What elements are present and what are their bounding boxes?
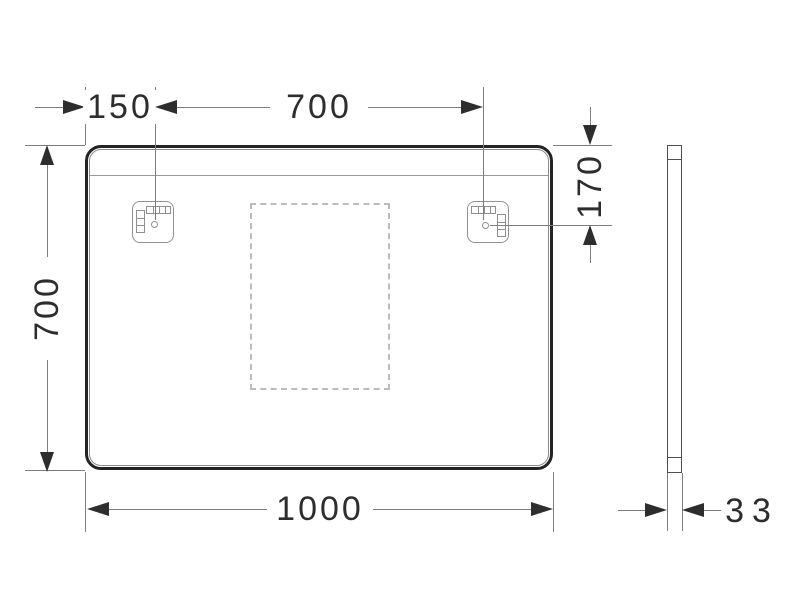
dimension-label-33: 33	[721, 494, 783, 528]
dimension-line-170-upper-lead	[590, 107, 591, 127]
extension-line-width-left	[85, 472, 86, 532]
extension-line-170-top	[553, 145, 612, 146]
extension-line-depth-left	[667, 473, 668, 531]
arrowhead-width-right	[531, 502, 553, 516]
technical-drawing-canvas: 150 700 700 170 1000 33	[0, 0, 800, 600]
dimension-line-height-a	[47, 165, 48, 257]
extension-line-height-top	[25, 145, 85, 146]
bracket-rail-divider	[498, 229, 505, 230]
extension-line-width-right	[553, 472, 554, 532]
extension-line-height-bottom	[25, 470, 85, 471]
dimension-label-700-span: 700	[282, 90, 356, 124]
arrowhead-height-top	[40, 145, 54, 165]
bracket-rail-divider	[137, 218, 144, 219]
arrowhead-150-left	[63, 100, 85, 114]
arrowhead-700-span-right	[461, 100, 483, 114]
bracket-screw-hole-icon	[151, 221, 158, 228]
bracket-rail-vertical	[136, 210, 145, 233]
bracket-screw-hole-icon	[482, 222, 489, 229]
arrowhead-depth-left	[645, 503, 667, 517]
bracket-rail-horizontal	[146, 206, 171, 214]
bracket-rail-divider	[478, 207, 479, 213]
dimension-label-150: 150	[83, 90, 157, 124]
side-profile-top-joint-line	[668, 159, 681, 160]
dimension-line-700-span-b	[368, 107, 461, 108]
dimension-line-height-b	[47, 360, 48, 452]
bracket-rail-divider	[153, 207, 154, 213]
arrowhead-700-span-left	[155, 100, 177, 114]
bracket-rail-divider	[137, 225, 144, 226]
dimension-line-depth-lead-left	[618, 510, 645, 511]
arrowhead-width-left	[87, 502, 109, 516]
dimension-label-height-700: 700	[30, 271, 64, 345]
mirror-dashed-sensor-zone	[250, 203, 390, 390]
bracket-rail-divider	[165, 207, 166, 213]
mounting-bracket-right-icon	[467, 201, 509, 243]
mirror-top-edge-line	[90, 175, 548, 176]
dimension-line-150-lead	[35, 107, 63, 108]
dimension-label-170: 170	[573, 149, 607, 223]
mirror-side-profile-view	[667, 145, 682, 473]
bracket-rail-divider	[159, 207, 160, 213]
dimension-line-700-span-a	[177, 107, 270, 108]
mounting-bracket-left-icon	[132, 201, 174, 243]
bracket-rail-divider	[484, 207, 485, 213]
arrowhead-170-bottom	[583, 225, 597, 245]
arrowhead-170-top	[583, 125, 597, 145]
extension-line-bracket-right	[483, 87, 484, 220]
arrowhead-depth-right	[682, 503, 704, 517]
bracket-rail-divider	[490, 207, 491, 213]
side-profile-bottom-joint-line	[668, 457, 681, 458]
dimension-line-width-a	[109, 509, 267, 510]
dimension-label-1000: 1000	[272, 492, 368, 526]
arrowhead-height-bottom	[40, 452, 54, 472]
dimension-line-170-lower-lead	[590, 245, 591, 263]
extension-line-depth-right	[682, 473, 683, 531]
bracket-rail-divider	[498, 222, 505, 223]
dimension-line-width-b	[373, 509, 531, 510]
